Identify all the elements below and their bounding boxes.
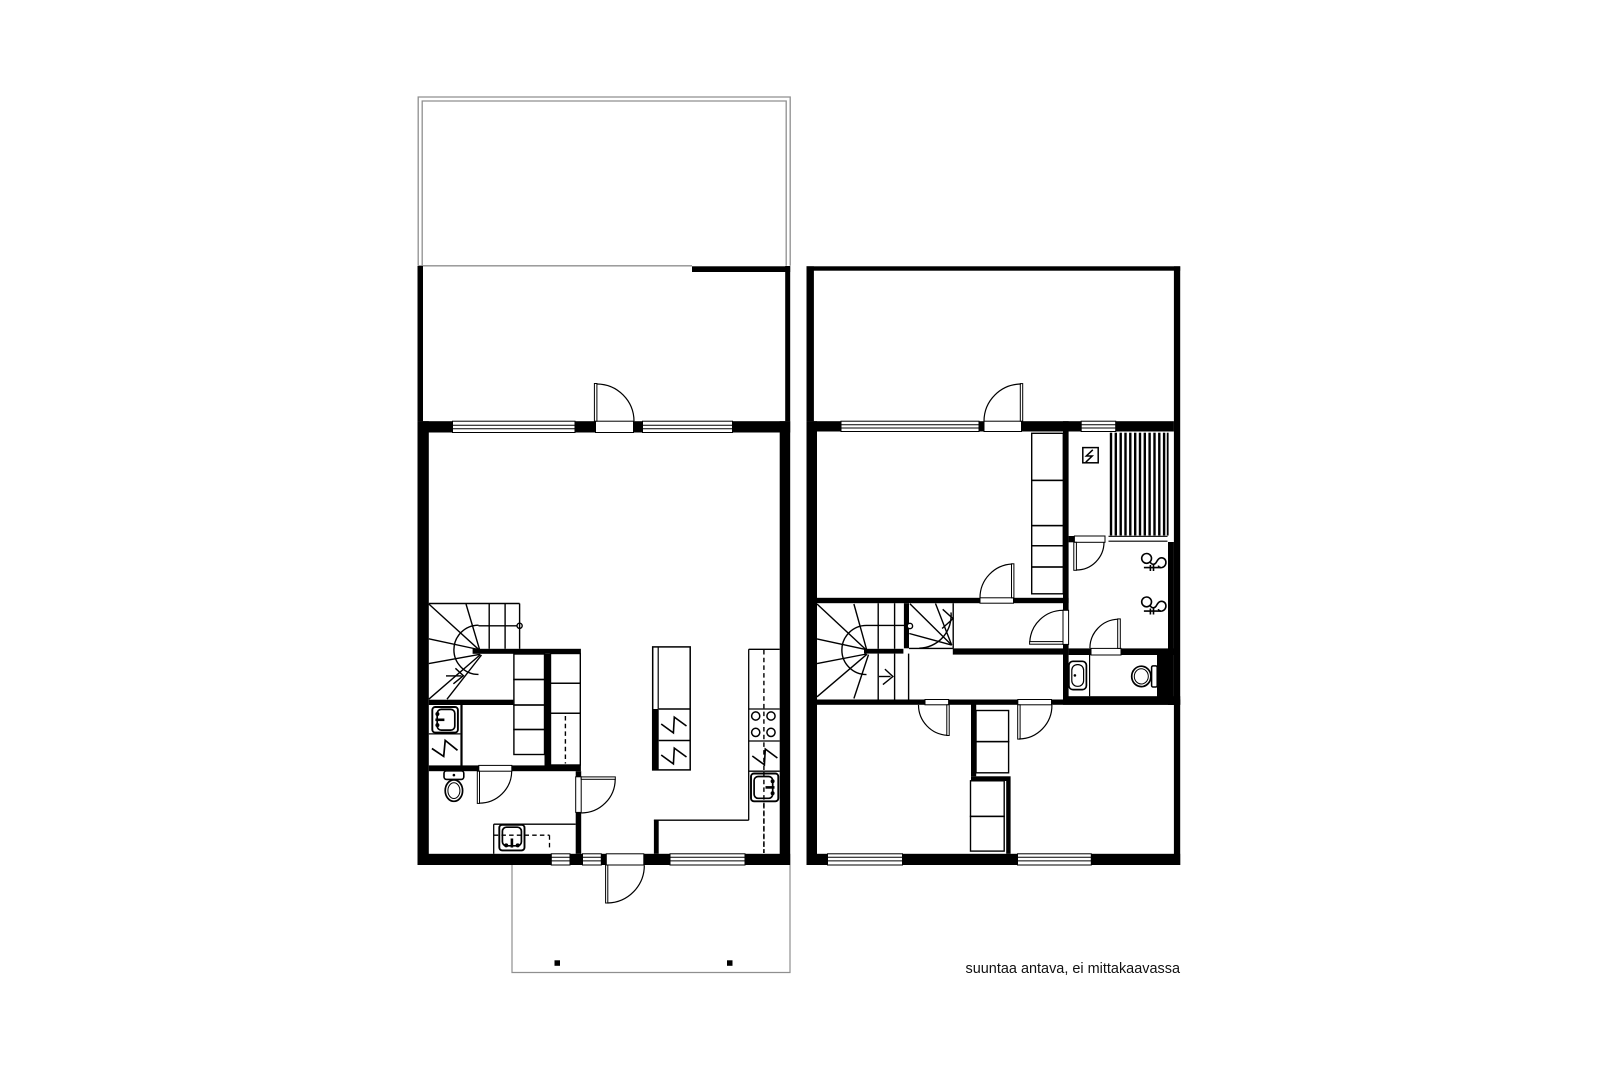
svg-text:suuntaa antava, ei mittakaavas: suuntaa antava, ei mittakaavassa — [966, 961, 1181, 977]
